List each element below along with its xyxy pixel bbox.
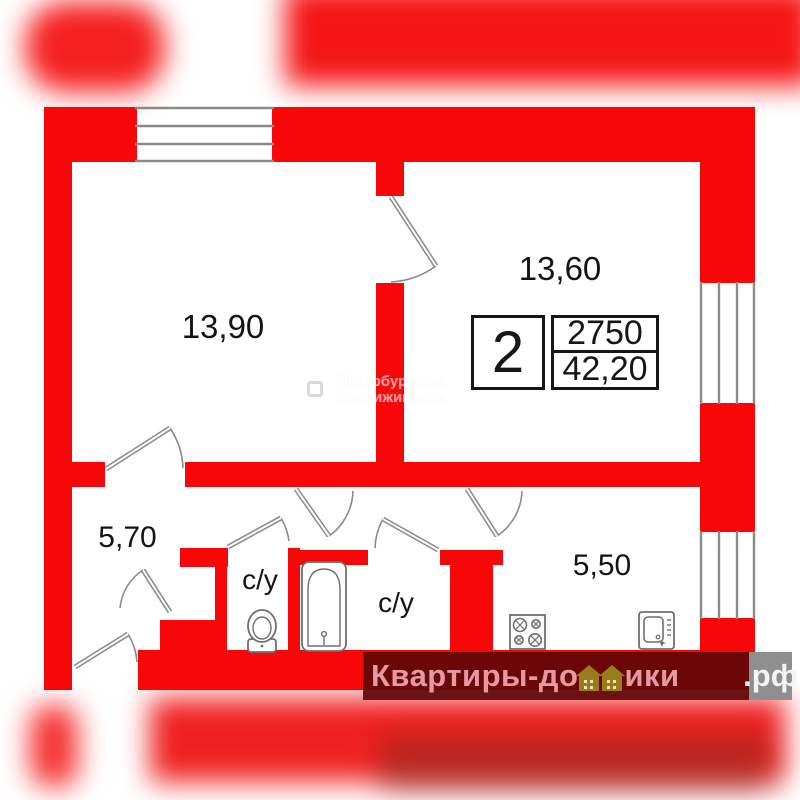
door-kitchen bbox=[467, 489, 522, 536]
rooms-count-value: 2 bbox=[492, 319, 524, 386]
total-area-value: 42,20 bbox=[554, 353, 656, 388]
door-hall-to-room1 bbox=[106, 428, 183, 469]
blur-blob-bottom-left bbox=[30, 705, 78, 787]
window-right-upper-glazing bbox=[701, 282, 754, 404]
floorplan-photo: 13,90 13,60 5,70 5,50 с/у с/у 2 2750 42,… bbox=[0, 0, 800, 800]
wall-top-right bbox=[272, 107, 755, 162]
room-label-kitchen: 5,50 bbox=[552, 549, 652, 583]
watermark-text-right: ики bbox=[624, 658, 679, 694]
watermark-text-left: Квартиры-до bbox=[371, 658, 578, 694]
wall-room-divider-stub bbox=[376, 162, 404, 196]
blur-blob-top-right bbox=[285, 0, 800, 86]
room-label-hallway: 5,70 bbox=[80, 521, 175, 555]
info-box-details: 2750 42,20 bbox=[551, 315, 659, 390]
stove-icon bbox=[510, 615, 545, 649]
blur-blob-top-left bbox=[25, 2, 165, 92]
door-hall-corridor bbox=[120, 570, 170, 612]
wall-horizontal-left bbox=[72, 462, 105, 487]
room-label-living1: 13,90 bbox=[168, 308, 278, 346]
bathtub-icon bbox=[302, 562, 346, 651]
door-wc bbox=[228, 518, 289, 547]
room-label-bathroom: с/у bbox=[366, 587, 426, 619]
window-right-lower-glazing bbox=[701, 531, 754, 619]
wall-bath-top-right bbox=[440, 550, 503, 565]
bottom-watermark-bar: Квартиры-до ики bbox=[363, 652, 757, 700]
watermark-line1: Петербургская bbox=[337, 374, 447, 390]
door-corridor-1 bbox=[296, 489, 353, 536]
appliance-icon bbox=[639, 612, 674, 649]
wall-kitchen-left bbox=[450, 565, 493, 650]
blur-blob-bottom-dark bbox=[380, 735, 770, 790]
wall-hall-step bbox=[160, 620, 215, 650]
wall-right-lower bbox=[700, 618, 755, 652]
house-icon bbox=[599, 665, 626, 692]
wall-horizontal-main bbox=[185, 462, 755, 487]
room-label-living2: 13,60 bbox=[505, 250, 615, 288]
watermark-domain-suffix: .рф bbox=[743, 658, 798, 694]
room-label-wc: с/у bbox=[230, 564, 290, 596]
door-room-divider bbox=[391, 197, 436, 282]
wall-wc-cap bbox=[180, 548, 228, 567]
ceiling-height-value: 2750 bbox=[554, 318, 656, 353]
door-entrance bbox=[75, 634, 137, 667]
wall-left bbox=[44, 107, 72, 690]
center-watermark: Петербургская недвижимость bbox=[300, 374, 447, 406]
window-top-glazing bbox=[135, 108, 274, 161]
door-bathroom bbox=[375, 519, 438, 550]
wall-bath-top bbox=[288, 550, 368, 565]
info-box-rooms-count: 2 bbox=[471, 315, 545, 390]
wall-right-upper bbox=[700, 162, 755, 283]
toilet-icon bbox=[248, 610, 276, 652]
bottom-watermark-gray-block: .рф bbox=[749, 652, 792, 700]
agency-logo-icon bbox=[300, 374, 330, 404]
watermark-line2: недвижимость bbox=[337, 390, 447, 406]
